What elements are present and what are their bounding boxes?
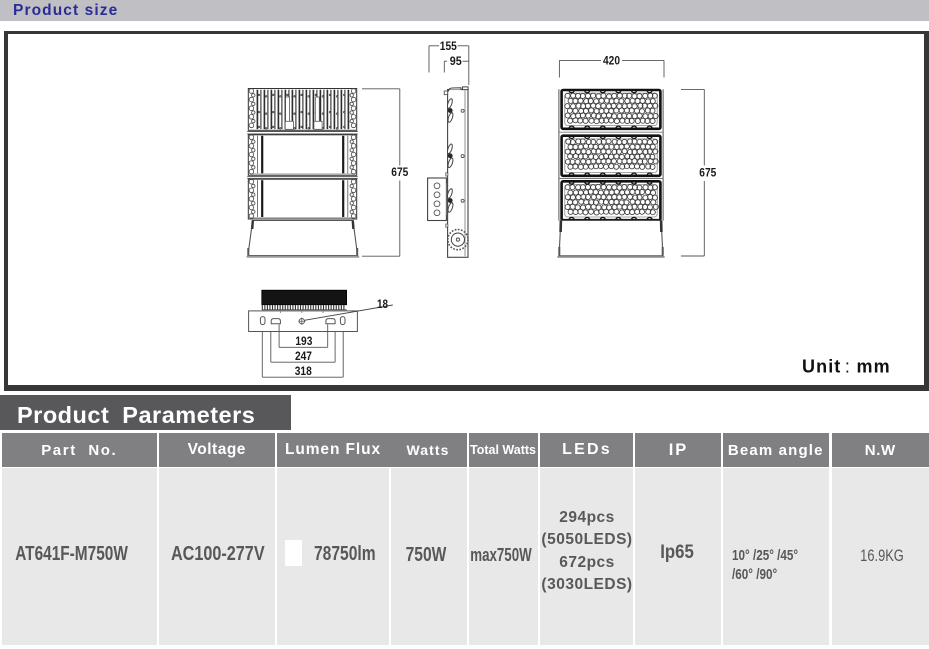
svg-text:318: 318 bbox=[295, 366, 313, 378]
svg-text:247: 247 bbox=[295, 351, 312, 363]
svg-text:420: 420 bbox=[603, 55, 620, 67]
svg-text:675: 675 bbox=[699, 168, 717, 180]
svg-text:Unit:mm: Unit:mm bbox=[802, 357, 891, 377]
svg-text:155: 155 bbox=[440, 41, 458, 53]
svg-text:18: 18 bbox=[377, 299, 389, 311]
svg-text:675: 675 bbox=[391, 167, 409, 179]
svg-text:95: 95 bbox=[450, 56, 463, 68]
svg-text:193: 193 bbox=[295, 336, 312, 348]
